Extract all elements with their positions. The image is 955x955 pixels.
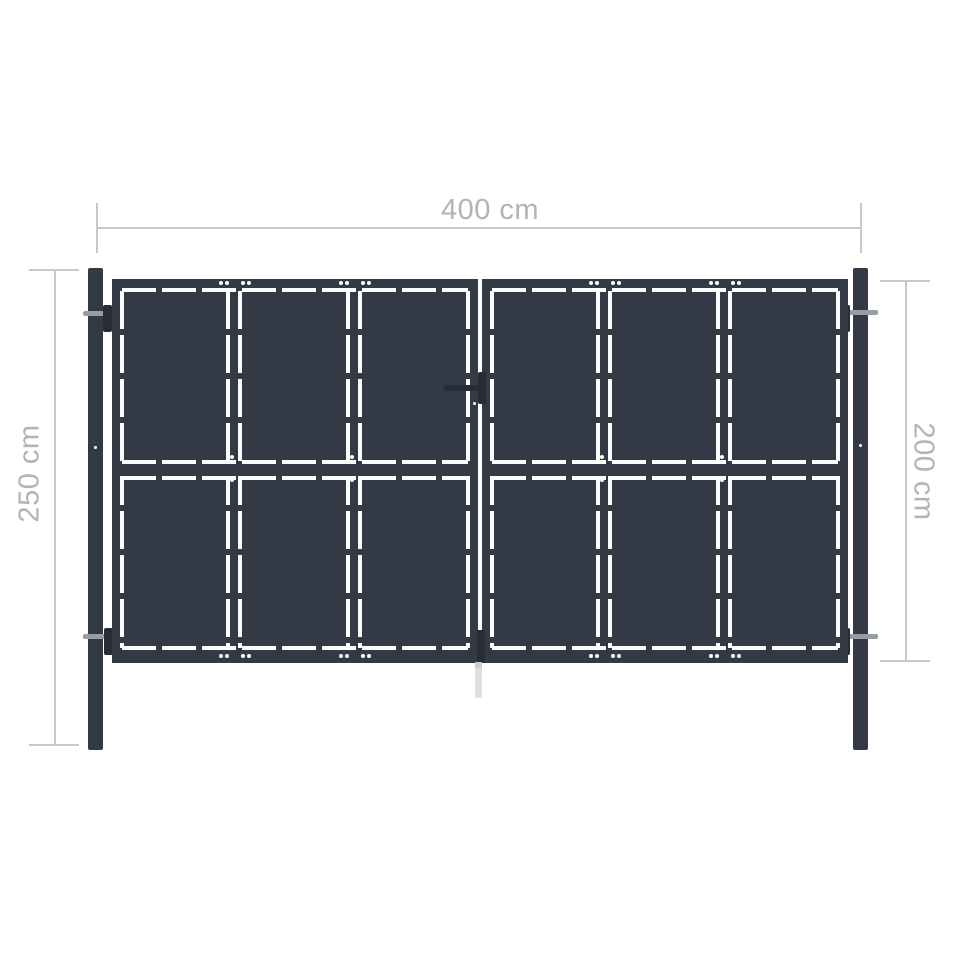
gate-dimension-diagram: 400 cm 250 cm 200 cm <box>0 0 955 955</box>
dimension-gate-height-label: 200 cm <box>907 392 940 552</box>
bolt-dots-rail-lower <box>482 478 486 482</box>
panel-middle-rail <box>486 464 844 476</box>
dimension-width-label: 400 cm <box>402 194 578 227</box>
gate-panel-left <box>112 279 478 663</box>
bolt-dots-rail-lower <box>112 478 116 482</box>
panel-middle-rail <box>116 464 474 476</box>
right-gate-post <box>853 268 868 750</box>
dimension-gate-height-tick-bottom <box>880 660 930 662</box>
dimension-width-tick-right <box>860 203 862 253</box>
panel-middle-rail-gap-bottom <box>122 476 468 480</box>
bolt-dots-bottom <box>112 654 116 658</box>
right-post-bolt-dot <box>859 444 862 447</box>
drop-rod <box>475 662 482 698</box>
gate-lock-plate <box>478 372 486 404</box>
dimension-post-height-label: 250 cm <box>14 394 47 554</box>
dimension-width-line <box>96 227 862 229</box>
panel-middle-rail-gap-top <box>492 460 838 464</box>
panel-middle-rail-gap-top <box>122 460 468 464</box>
bolt-dots-rail-upper <box>112 455 116 459</box>
panel-frame-gap-top <box>492 288 838 292</box>
bolt-dots-top <box>482 281 486 285</box>
panel-frame-gap-bottom <box>122 646 468 650</box>
gate-lock-dot <box>473 402 476 405</box>
panel-middle-rail-gap-bottom <box>492 476 838 480</box>
left-gate-post <box>88 268 103 750</box>
dimension-post-height-line <box>54 270 56 746</box>
panel-frame-gap-top <box>122 288 468 292</box>
left-post-bolt-dot <box>94 446 97 449</box>
dimension-post-height-tick-bottom <box>29 744 79 746</box>
dimension-gate-height-tick-top <box>880 280 930 282</box>
gate-handle <box>443 385 479 391</box>
gate-panel-right <box>482 279 848 663</box>
panel-frame-gap-bottom <box>492 646 838 650</box>
dimension-post-height-tick-top <box>29 269 79 271</box>
center-latch <box>477 630 485 663</box>
dimension-width-tick-left <box>96 203 98 253</box>
bolt-dots-top <box>112 281 116 285</box>
bolt-dots-rail-upper <box>482 455 486 459</box>
hinge-bracket-top-left <box>103 305 112 332</box>
